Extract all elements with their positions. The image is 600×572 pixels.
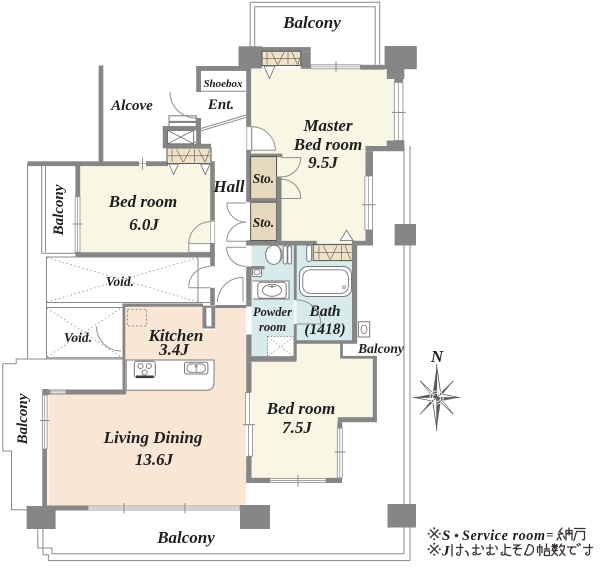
svg-text:Ent.: Ent. [207, 97, 234, 113]
svg-text:Shoebox: Shoebox [203, 78, 243, 90]
svg-text:Sto.: Sto. [253, 171, 274, 186]
svg-text:=: = [546, 527, 553, 542]
svg-text:Balcony: Balcony [15, 393, 31, 445]
svg-text:Void.: Void. [106, 274, 134, 289]
svg-text:Master: Master [302, 116, 353, 135]
svg-text:Balcony: Balcony [282, 13, 341, 32]
svg-text:Powder: Powder [253, 305, 292, 319]
svg-text:Balcony: Balcony [156, 528, 215, 547]
svg-text:Bed room: Bed room [266, 399, 335, 418]
svg-text:3.4J: 3.4J [158, 340, 189, 359]
svg-text:Sto.: Sto. [253, 215, 274, 230]
svg-text:6.0J: 6.0J [129, 215, 159, 234]
svg-text:Bath: Bath [308, 303, 340, 320]
svg-text:Bed room: Bed room [108, 192, 177, 211]
svg-text:Balcony: Balcony [357, 341, 405, 356]
svg-text:Void.: Void. [64, 330, 92, 345]
svg-text:N: N [430, 347, 444, 366]
svg-text:S: S [442, 528, 450, 544]
svg-text:7.5J: 7.5J [282, 418, 312, 437]
svg-text:9.5J: 9.5J [308, 153, 338, 172]
svg-text:13.6J: 13.6J [135, 450, 174, 469]
svg-text:J: J [441, 544, 450, 560]
svg-text:room: room [259, 320, 286, 334]
svg-text:Balcony: Balcony [51, 184, 67, 236]
svg-text:Hall: Hall [212, 177, 244, 196]
svg-text:Alcove: Alcove [110, 98, 153, 114]
svg-text:Living Dining: Living Dining [103, 428, 203, 447]
svg-text:Service room: Service room [462, 528, 545, 544]
svg-text:Bed room: Bed room [293, 135, 362, 154]
